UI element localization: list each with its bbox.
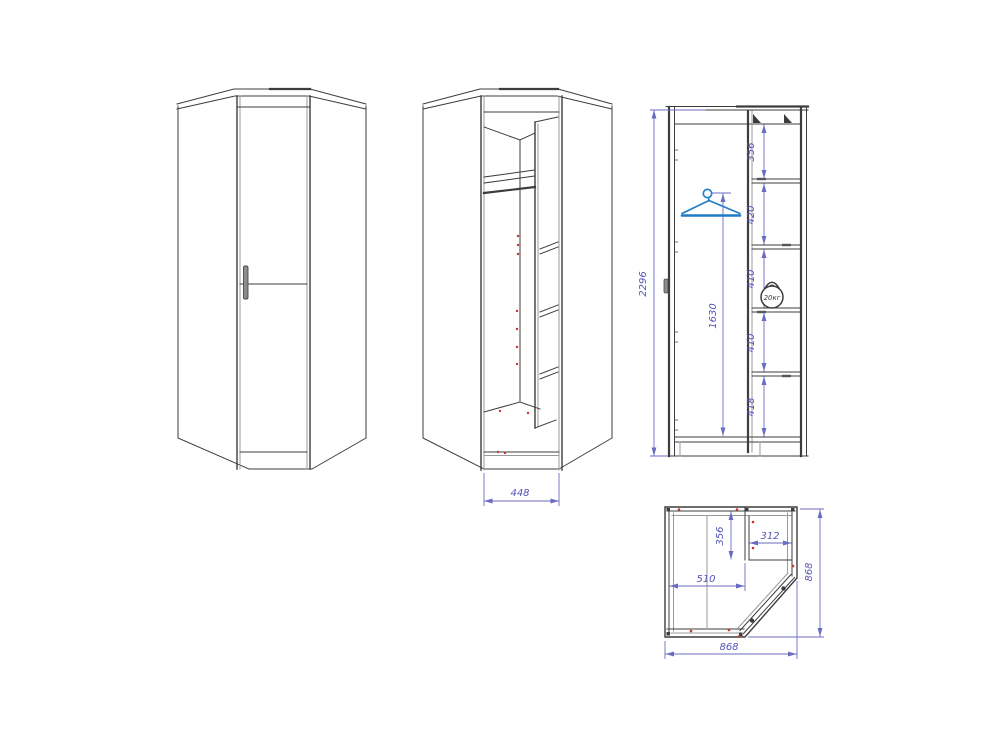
front-view-closed: [177, 89, 366, 469]
front-view-open: 448: [423, 89, 612, 506]
front-open-outline: [423, 89, 612, 470]
dim-label-418: 418: [746, 397, 757, 416]
dim-label-356: 356: [746, 142, 757, 161]
hanging-rod: [484, 187, 535, 193]
dim-rod-height: 1630: [708, 193, 731, 436]
dim-overall-width: 868: [665, 581, 797, 659]
door-hole-marks: [675, 150, 678, 430]
weight-label: 20кг: [764, 294, 781, 302]
technical-drawing-canvas: 448: [0, 0, 1000, 750]
dim-label-410b: 410: [746, 333, 757, 352]
dim-overall-height: 2296: [638, 110, 706, 456]
section-door-handle: [664, 279, 668, 293]
corner-bracket-icon: [753, 114, 761, 123]
dim-shelf-bay-depth: 356: [715, 512, 731, 560]
hanger-icon: [682, 189, 740, 215]
dim-label-448: 448: [510, 488, 529, 499]
dim-label-312: 312: [760, 531, 779, 542]
dim-label-868-right: 868: [804, 562, 815, 581]
plan-view: 356 312 510 868 868: [665, 507, 824, 659]
dim-label-510: 510: [696, 574, 715, 585]
corner-bracket-icon: [784, 114, 792, 123]
dim-label-868-bottom: 868: [719, 642, 738, 653]
hinge-mark: [781, 586, 785, 590]
shelf-pin-marks: [497, 235, 529, 454]
dim-shelf-bay-width: 312: [750, 531, 792, 543]
dim-label-420: 420: [746, 205, 757, 224]
dim-label-410a: 410: [746, 269, 757, 288]
plan-corner-blocks: [667, 508, 795, 636]
front-open-interior: [484, 117, 559, 456]
dim-label-2296: 2296: [638, 271, 649, 296]
door-handle: [244, 266, 249, 299]
dim-overall-depth: 868: [748, 509, 824, 637]
dim-label-1630: 1630: [708, 303, 719, 328]
side-section-view: 2296 1630 356 420 410 410 418: [638, 107, 808, 457]
front-closed-door: [237, 96, 310, 469]
dim-opening-width: 448: [484, 473, 559, 506]
plan-door-diagonal: [738, 573, 795, 634]
shelves: [752, 179, 801, 376]
front-closed-outline: [177, 89, 366, 469]
plan-fitting-marks: [678, 508, 795, 638]
section-structure: [664, 107, 808, 457]
hinge-mark: [750, 618, 754, 622]
dim-label-plan-356: 356: [715, 526, 726, 545]
